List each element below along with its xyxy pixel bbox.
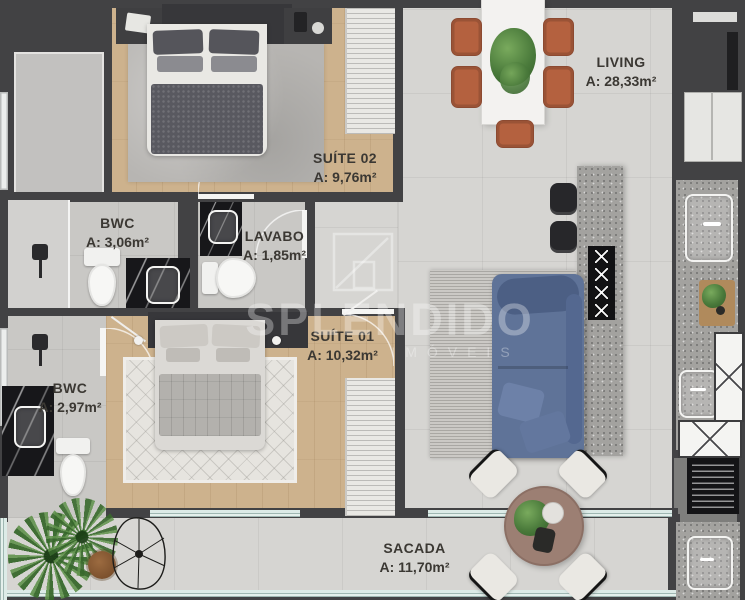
pillow-dark-right (209, 29, 260, 55)
pillow-suite01-left (159, 324, 208, 348)
blanket-suite01 (159, 374, 261, 436)
washbasin-bwc1 (146, 266, 180, 304)
faucet (703, 222, 721, 226)
dining-chair (451, 18, 482, 56)
nightstand-decor-vase (294, 12, 307, 32)
wardrobe-suite02 (345, 8, 395, 134)
bar-stool (550, 183, 577, 215)
nightstand-decor-ball (312, 22, 324, 34)
blanket-suite02 (151, 84, 263, 154)
shower-head-bwc2 (32, 334, 48, 350)
bar-stool (550, 221, 577, 253)
burner (595, 250, 608, 263)
dining-chair (543, 18, 574, 56)
wall-lamp-right-shade (272, 336, 281, 345)
pillow-dark-left (153, 29, 204, 55)
burner (595, 268, 608, 281)
door-arc-lavabo (256, 210, 304, 258)
dining-chair (451, 66, 482, 108)
faucet (700, 558, 714, 561)
burner (595, 304, 608, 317)
pillow-gray-right (211, 56, 257, 72)
dining-chair (496, 120, 534, 148)
door-arc-suite01 (342, 314, 394, 366)
grill-grate (692, 464, 734, 508)
washbasin-lavabo (208, 210, 238, 244)
faucet (690, 388, 706, 391)
cushion-suite01-left (166, 348, 200, 362)
teapot (542, 502, 564, 524)
window-suite02 (0, 92, 8, 190)
laundry-box (678, 420, 742, 458)
sliding-door-suite01 (150, 510, 300, 517)
shower-stem-bwc2 (39, 350, 42, 366)
dining-chair (543, 66, 574, 108)
door-leaf-suite02 (198, 194, 254, 199)
wall-lamp-left-shade (134, 336, 143, 345)
nightstand-right (284, 8, 332, 44)
oven-tower (727, 32, 738, 90)
hanging-chair (108, 516, 170, 592)
shower-head (32, 244, 48, 260)
washbasin-bwc2 (14, 406, 46, 448)
wardrobe-suite01 (345, 378, 395, 516)
floor-plan: LIVING A: 28,33m² SUÍTE 02 A: 9,76m² BWC… (0, 0, 745, 600)
adjacent-area-inset (14, 52, 104, 196)
toilet-tank-bwc2 (56, 438, 90, 454)
refrigerator-divider (711, 92, 713, 160)
hall-floor (313, 198, 398, 312)
cushion-suite01-right (216, 348, 250, 362)
pillow-gray-left (157, 56, 203, 72)
kitchen-sink (685, 194, 733, 262)
washer-door (714, 332, 744, 422)
balcony-sink (687, 536, 733, 590)
bowl (716, 306, 725, 315)
pillow-suite01-right (211, 324, 260, 348)
sofa-seat-seam (498, 366, 568, 369)
prep-sink (679, 370, 719, 418)
shower-stem (39, 260, 42, 278)
sofa-armrest (566, 294, 582, 444)
balcony-railing-left (0, 518, 7, 600)
kitchen-shelf (693, 12, 737, 22)
shower-glass (68, 200, 70, 308)
burner (595, 286, 608, 299)
wall-suite01-right (395, 308, 405, 514)
refrigerator (684, 92, 742, 162)
